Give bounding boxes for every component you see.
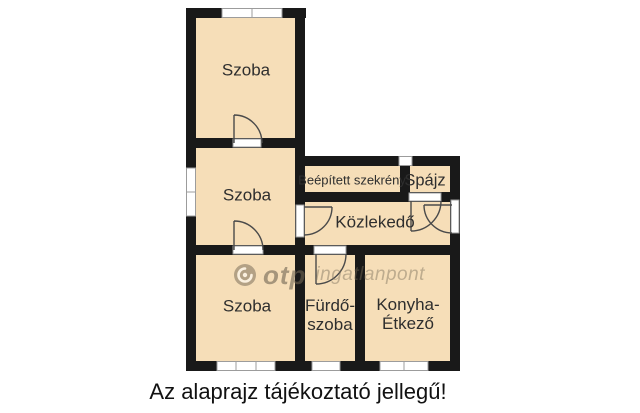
floorplan-page: Szoba Szoba Szoba Beépített szekrény Spá… [0, 0, 640, 413]
wall-right [450, 156, 460, 371]
window-bathroom [312, 362, 340, 371]
room-label-pantry: Spájz [404, 172, 445, 191]
room-label-kitchen-line2: Étkező [376, 314, 439, 333]
room-label-wardrobe: Beépített szekrény [298, 171, 406, 190]
wall-bath-kitchen-divider [355, 245, 365, 371]
room-label-szoba-middle: Szoba [223, 186, 271, 205]
door-opening-bathroom [314, 246, 346, 254]
window-szoba-bottom [217, 362, 275, 371]
room-label-szoba-bottom: Szoba [223, 297, 271, 316]
wall-closets-top [295, 156, 460, 166]
room-label-hallway: Közlekedő [335, 213, 414, 232]
door-opening-entrance [451, 200, 459, 233]
caption: Az alaprajz tájékoztató jellegű! [0, 379, 596, 405]
window-top-vent [399, 157, 412, 166]
room-label-kitchen: Konyha- Étkező [376, 295, 439, 333]
room-label-bathroom-line1: Fürdő- [305, 296, 355, 315]
door-opening-szoba2-hallway [296, 205, 304, 237]
room-label-bathroom: Fürdő- szoba [305, 296, 355, 334]
door-opening-szoba1-szoba2 [233, 139, 261, 147]
door-opening-pantry [409, 193, 441, 201]
room-label-szoba-top: Szoba [222, 61, 270, 80]
floorplan-drawing [0, 0, 640, 413]
door-opening-szoba2-szoba3 [233, 246, 263, 254]
room-label-bathroom-line2: szoba [305, 315, 355, 334]
room-label-kitchen-line1: Konyha- [376, 295, 439, 314]
